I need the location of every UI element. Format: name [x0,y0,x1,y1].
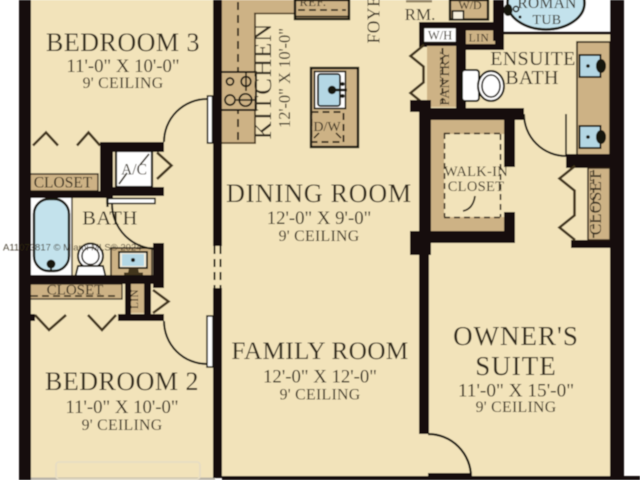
svg-text:D/W: D/W [313,120,341,135]
svg-text:LIN: LIN [129,289,141,309]
svg-text:FAMILY ROOM: FAMILY ROOM [231,337,408,365]
svg-text:9' CEILING: 9' CEILING [476,399,557,416]
svg-text:REF.: REF. [299,0,326,9]
svg-text:BEDROOM 3: BEDROOM 3 [46,28,200,57]
svg-text:12'-0" X 9'-0": 12'-0" X 9'-0" [267,208,372,229]
svg-text:9' CEILING: 9' CEILING [83,75,164,92]
svg-text:12'-0" X 12'-0": 12'-0" X 12'-0" [263,367,377,388]
svg-text:W/D: W/D [458,0,482,12]
svg-text:DINING ROOM: DINING ROOM [226,179,412,208]
svg-text:SUITE: SUITE [475,351,557,381]
svg-text:CLOSET: CLOSET [448,179,505,195]
svg-text:9' CEILING: 9' CEILING [280,387,361,404]
svg-text:WALK-IN: WALK-IN [444,164,508,180]
svg-text:PANTRY: PANTRY [437,50,452,105]
svg-text:KITCHEN: KITCHEN [250,23,277,140]
svg-text:BATH: BATH [82,208,138,230]
svg-text:11'-0" X 10'-0": 11'-0" X 10'-0" [66,56,179,77]
svg-text:9' CEILING: 9' CEILING [82,417,163,434]
svg-text:11'-0" X 10'-0": 11'-0" X 10'-0" [65,397,178,418]
svg-text:LIN: LIN [469,33,490,45]
svg-text:BATH: BATH [505,67,558,89]
svg-text:RM.: RM. [405,5,436,24]
svg-text:BEDROOM 2: BEDROOM 2 [45,367,199,396]
svg-text:FOYER: FOYER [364,0,384,43]
svg-text:9' CEILING: 9' CEILING [279,228,360,245]
svg-text:ROMAN: ROMAN [517,0,576,12]
svg-text:A11073817 © Miami MLS® 2024: A11073817 © Miami MLS® 2024 [3,243,141,254]
svg-text:OWNER'S: OWNER'S [453,321,579,351]
svg-text:TUB: TUB [533,13,562,28]
svg-text:CLOSET: CLOSET [586,170,605,235]
svg-text:CLOSET: CLOSET [34,175,93,192]
svg-text:W/H: W/H [428,29,452,43]
svg-text:CLOSET: CLOSET [47,283,104,299]
svg-text:12'-0" X 10'-0": 12'-0" X 10'-0" [275,28,294,128]
